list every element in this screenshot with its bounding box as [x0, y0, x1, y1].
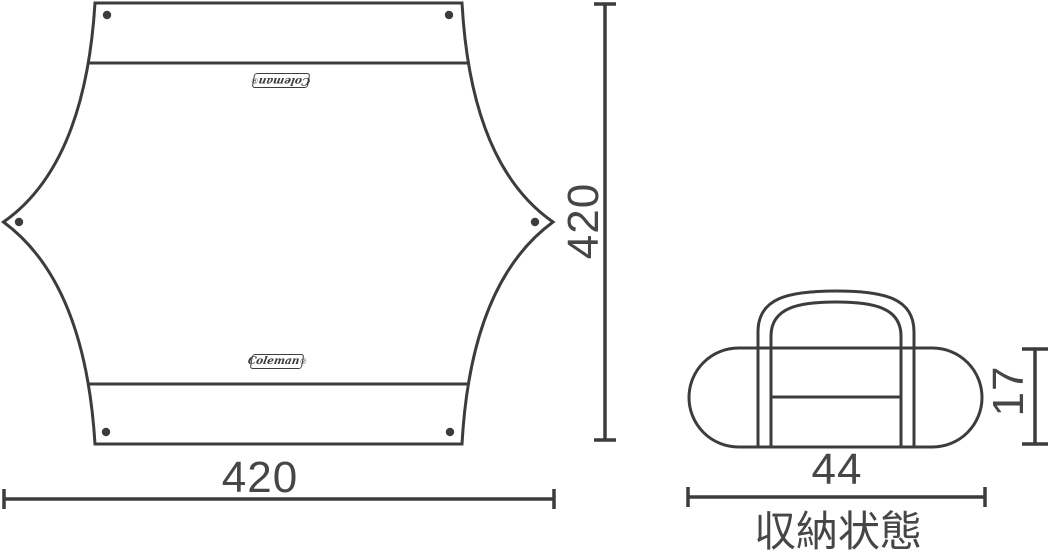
grommet-bottom-left	[102, 428, 110, 436]
grommet-left	[15, 218, 23, 226]
grommet-right	[531, 218, 539, 226]
storage-caption: 収納状態	[754, 508, 922, 552]
diagram-canvas: 420 420 44 17 収納状態	[0, 0, 1050, 552]
spec-diagram: 420 420 44 17 収納状態 Coleman ® Coleman ®	[0, 0, 1050, 552]
tarp-outline	[4, 3, 554, 444]
bag-handle-inner	[771, 302, 901, 447]
bag-height-label: 17	[984, 366, 1033, 417]
coleman-logo-top-text: Coleman	[258, 75, 311, 86]
bag-width-label: 44	[812, 445, 863, 494]
tarp-height-label: 420	[559, 183, 608, 259]
grommet-top-right	[445, 11, 453, 19]
coleman-logo-bottom: Coleman ®	[250, 354, 305, 369]
grommet-bottom-right	[446, 428, 454, 436]
grommet-top-left	[103, 11, 111, 19]
coleman-logo-top: Coleman ®	[252, 73, 311, 88]
tarp-width-label: 420	[222, 453, 298, 502]
coleman-logo-bottom-text: Coleman	[247, 356, 300, 367]
